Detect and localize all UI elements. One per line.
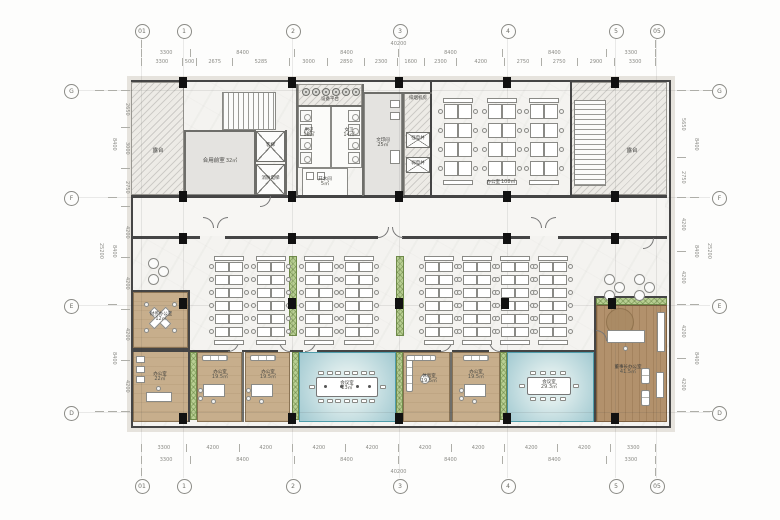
chair: [519, 384, 525, 388]
dim-label: 2750: [541, 58, 577, 66]
desk: [444, 123, 458, 138]
grid-bubble-right: F: [712, 191, 727, 206]
dim-label: 25200: [95, 90, 104, 412]
chair: [524, 166, 529, 171]
chair: [495, 277, 500, 282]
dim-label: 2675: [196, 58, 232, 66]
desk: [544, 123, 558, 138]
chair: [211, 399, 216, 404]
grid-bubble-right: G: [712, 84, 727, 99]
copier: [390, 112, 400, 120]
desk: [257, 262, 271, 272]
desk: [229, 288, 243, 298]
office-108-label: 办公室108㎡: [474, 180, 528, 186]
desk: [477, 275, 491, 285]
desk: [488, 142, 502, 157]
desk: [488, 161, 502, 176]
wall: [285, 130, 287, 195]
dim-bottom-spans: 330084008400840084003300: [141, 456, 656, 464]
chair: [244, 329, 249, 334]
dim-label: 2850: [327, 58, 364, 66]
dim-label: 4200: [292, 444, 345, 452]
chair: [318, 399, 324, 403]
dim-label: 5285: [232, 58, 289, 66]
desk-bank: [462, 256, 492, 346]
wall: [317, 350, 441, 352]
desk: [477, 327, 491, 337]
dim-label: 8400: [294, 49, 398, 57]
chair: [472, 399, 477, 404]
desk: [539, 275, 553, 285]
chair: [335, 399, 341, 403]
round-table: [604, 274, 615, 285]
desk: [488, 104, 502, 119]
stair-top-left: [222, 92, 276, 130]
chair: [198, 396, 203, 401]
desk: [477, 288, 491, 298]
desk: [271, 262, 285, 272]
chair: [380, 385, 386, 389]
chair: [251, 277, 256, 282]
desk: [515, 327, 529, 337]
dim-right-total: 25200: [703, 90, 712, 412]
chair: [559, 147, 564, 152]
desk: [515, 262, 529, 272]
dim-label: 3300: [141, 58, 182, 66]
chair: [623, 346, 628, 351]
desk: [305, 301, 319, 311]
dim-label: 4200: [451, 444, 504, 452]
chair: [524, 109, 529, 114]
chair: [517, 109, 522, 114]
chair: [517, 147, 522, 152]
chair: [209, 264, 214, 269]
chair: [560, 397, 566, 401]
column: [395, 413, 403, 424]
equipment-fan: [322, 88, 330, 96]
wall: [296, 105, 362, 107]
desk-cap: [344, 340, 374, 345]
desk: [345, 327, 359, 337]
chair: [438, 147, 443, 152]
desk: [502, 123, 516, 138]
desk: [501, 275, 515, 285]
chair: [457, 329, 462, 334]
grid-line-h: [78, 90, 710, 91]
column: [503, 413, 511, 424]
desk: [305, 275, 319, 285]
dim-label: 4200: [398, 444, 451, 452]
chair: [495, 316, 500, 321]
dim-label: 8400: [398, 456, 502, 464]
dim-label: 4200: [121, 257, 130, 308]
dim-left-total: 25200: [95, 90, 104, 412]
desk: [439, 327, 453, 337]
chair: [374, 303, 379, 308]
terrace-left-label: 露台: [138, 148, 178, 154]
dim-label: 3300: [610, 444, 656, 452]
desk: [477, 301, 491, 311]
chair: [144, 302, 149, 307]
desk-cap: [214, 256, 244, 261]
desk: [257, 288, 271, 298]
desk: [345, 262, 359, 272]
chair: [457, 316, 462, 321]
dim-label: 8400: [502, 49, 606, 57]
smoke-fan-room-label: 排烟机房: [404, 96, 432, 101]
planter: [500, 352, 507, 420]
dim-label: 4200: [456, 58, 504, 66]
weak-shaft-label: 弱电井: [406, 161, 430, 166]
grid-bubble-top: 05: [650, 24, 665, 39]
column: [179, 413, 187, 424]
chair: [335, 371, 341, 375]
wall: [570, 80, 572, 196]
chair: [419, 277, 424, 282]
grid-bubble-top: 5: [609, 24, 624, 39]
dim-label: 8400: [690, 304, 699, 412]
office-22-label: 办公室22㎡: [140, 372, 180, 383]
dim-label: 2300: [424, 58, 457, 66]
desk: [530, 104, 544, 119]
column: [288, 77, 296, 88]
sofa: [250, 355, 276, 361]
desk: [271, 288, 285, 298]
chair: [251, 303, 256, 308]
desk: [319, 327, 333, 337]
office-desk: [203, 384, 225, 397]
chair: [560, 371, 566, 375]
dim-label: 4200: [677, 251, 686, 305]
chair: [299, 290, 304, 295]
desk: [458, 161, 472, 176]
desk-cap: [424, 340, 454, 345]
toilet-stall: [348, 138, 360, 150]
executive-desk: [607, 330, 645, 343]
chair: [172, 328, 177, 333]
grid-bubble-left: E: [64, 299, 79, 314]
column: [179, 233, 187, 244]
desk: [463, 301, 477, 311]
equipment-fan: [342, 88, 350, 96]
chair: [540, 371, 546, 375]
dim-label: 3300: [606, 456, 656, 464]
desk: [271, 314, 285, 324]
desk: [359, 327, 373, 337]
chair: [438, 166, 443, 171]
chair: [419, 290, 424, 295]
dim-label: 4200: [677, 304, 686, 358]
desk-bank: [529, 98, 559, 186]
desk: [215, 301, 229, 311]
chair: [495, 303, 500, 308]
chair: [495, 290, 500, 295]
desk-cap: [500, 256, 530, 261]
desk: [425, 314, 439, 324]
sofa: [202, 355, 228, 361]
chair: [473, 128, 478, 133]
chair: [419, 329, 424, 334]
desk: [458, 142, 472, 157]
chair: [374, 329, 379, 334]
desk-cap: [462, 256, 492, 261]
sofa: [641, 390, 650, 406]
chair: [344, 399, 350, 403]
dim-label: 8400: [690, 197, 699, 304]
desk: [544, 104, 558, 119]
toilet-stall: [300, 110, 312, 122]
terrace-left: [131, 82, 184, 195]
desk-cap: [500, 340, 530, 345]
desk: [345, 275, 359, 285]
wall: [362, 84, 364, 196]
chair: [568, 329, 573, 334]
desk: [305, 262, 319, 272]
grid-bubble-top: 01: [135, 24, 150, 39]
chair: [209, 277, 214, 282]
column: [395, 298, 403, 309]
chair: [374, 264, 379, 269]
chair: [244, 264, 249, 269]
chair: [473, 166, 478, 171]
chair: [299, 277, 304, 282]
equipment-fan: [312, 88, 320, 96]
dim-label: 1600: [397, 58, 424, 66]
dim-label: 4200: [504, 444, 557, 452]
desk: [539, 301, 553, 311]
work-table: [390, 150, 400, 164]
elevator-label: 客梯: [258, 143, 283, 148]
chair: [482, 128, 487, 133]
desk: [319, 288, 333, 298]
desk: [425, 275, 439, 285]
dim-bottom-total: 40200: [141, 468, 656, 476]
fire-elevator-label: 消防电梯: [256, 176, 285, 181]
chair: [318, 371, 324, 375]
dim-label: 4200: [345, 444, 398, 452]
desk: [539, 288, 553, 298]
dim-left-sub: 2650300027504200420042004200: [121, 90, 130, 412]
column: [503, 233, 511, 244]
desk: [229, 327, 243, 337]
desk-bank: [256, 256, 286, 346]
desk: [553, 275, 567, 285]
chair: [573, 384, 579, 388]
desk: [257, 275, 271, 285]
desk: [345, 314, 359, 324]
desk: [439, 301, 453, 311]
chair: [286, 329, 291, 334]
dim-label: 2750: [677, 157, 686, 197]
dim-top-total: 40200: [141, 40, 656, 48]
desk: [439, 288, 453, 298]
chair: [533, 277, 538, 282]
column: [503, 77, 511, 88]
desk: [425, 288, 439, 298]
chair: [251, 290, 256, 295]
desk: [501, 327, 515, 337]
meeting-1-label: 会议室23㎡: [323, 381, 371, 392]
wall: [402, 92, 404, 196]
dim-label: 8400: [502, 456, 606, 464]
desk: [515, 275, 529, 285]
desk: [229, 275, 243, 285]
chair: [209, 303, 214, 308]
desk: [501, 314, 515, 324]
chair: [374, 316, 379, 321]
desk: [359, 301, 373, 311]
desk: [319, 262, 333, 272]
desk: [439, 275, 453, 285]
chair: [246, 396, 251, 401]
desk: [215, 275, 229, 285]
desk: [502, 104, 516, 119]
chair: [299, 316, 304, 321]
chair: [344, 371, 350, 375]
dim-label: 2300: [364, 58, 397, 66]
desk: [439, 314, 453, 324]
round-table: [158, 266, 169, 277]
dim-label: 8400: [190, 49, 294, 57]
meeting-2-label: 会议室29.3㎡: [529, 380, 569, 391]
toilet-stall: [300, 152, 312, 164]
chair: [209, 316, 214, 321]
dim-label: 2750: [504, 58, 540, 66]
chair: [550, 397, 556, 401]
desk: [553, 262, 567, 272]
desk: [488, 123, 502, 138]
desk: [359, 288, 373, 298]
column: [501, 298, 509, 309]
desk: [501, 288, 515, 298]
chair: [533, 264, 538, 269]
chair: [524, 128, 529, 133]
desk: [530, 161, 544, 176]
planter: [292, 352, 299, 420]
desk: [458, 123, 472, 138]
chair: [286, 290, 291, 295]
desk: [501, 262, 515, 272]
toilet-stall: [300, 138, 312, 150]
wall: [184, 130, 256, 132]
desk-bank: [304, 256, 334, 346]
dim-label: 500: [182, 58, 197, 66]
chair: [361, 371, 367, 375]
dim-label: 3300: [141, 49, 190, 57]
desk: [319, 314, 333, 324]
grid-bubble-bottom: 5: [609, 479, 624, 494]
office-22-desk: [146, 392, 172, 402]
chair: [550, 371, 556, 375]
desk: [502, 161, 516, 176]
chair: [327, 371, 333, 375]
desk: [544, 142, 558, 157]
chair: [299, 264, 304, 269]
desk: [425, 301, 439, 311]
chair: [533, 303, 538, 308]
desk: [515, 314, 529, 324]
dim-right-spans: 840084008400: [690, 90, 699, 412]
desk: [271, 301, 285, 311]
chair: [559, 166, 564, 171]
chair: [339, 290, 344, 295]
chair: [482, 147, 487, 152]
desk: [215, 288, 229, 298]
chair: [517, 166, 522, 171]
column: [179, 191, 187, 202]
office-c-label: 办公室19.5㎡: [456, 370, 496, 381]
office-a-label: 办公室19.5㎡: [200, 370, 240, 381]
desk-cap: [443, 98, 473, 103]
dim-label: 8400: [190, 456, 294, 464]
desk: [425, 262, 439, 272]
cabinet: [136, 356, 145, 363]
chair: [327, 399, 333, 403]
floor-plan: 露台 露台 合用前室32㎡ 客梯 消防电梯 男卫16㎡ 女卫14㎡ 开水间5㎡ …: [0, 0, 780, 520]
column: [611, 191, 619, 202]
chair: [482, 166, 487, 171]
stair-top-right: [574, 100, 606, 186]
desk: [229, 262, 243, 272]
desk: [345, 301, 359, 311]
desk-cap: [344, 256, 374, 261]
wall: [184, 130, 186, 195]
dim-label: 8400: [108, 90, 117, 197]
chair: [244, 316, 249, 321]
dim-label: 8400: [294, 456, 398, 464]
terrace-right-label: 露台: [612, 148, 652, 154]
wall: [452, 350, 489, 352]
dim-label: 8400: [398, 49, 502, 57]
desk: [305, 327, 319, 337]
wall: [296, 84, 298, 196]
dim-label: 40200: [141, 468, 656, 476]
grid-bubble-bottom: 1: [177, 479, 192, 494]
finance-office-label: 财务办公室12㎡: [136, 312, 186, 323]
desk-bank: [424, 256, 454, 346]
round-table: [634, 274, 645, 285]
desk-cap: [529, 98, 559, 103]
desk: [444, 142, 458, 157]
chair: [309, 385, 315, 389]
desk: [229, 314, 243, 324]
dim-label: 4200: [186, 444, 239, 452]
sofa: [463, 355, 489, 361]
desk: [444, 161, 458, 176]
chair: [517, 128, 522, 133]
chair: [568, 264, 573, 269]
office-b-label: 办公室19.5㎡: [248, 370, 288, 381]
column: [611, 413, 619, 424]
dim-label: 3000: [289, 58, 327, 66]
chair: [244, 277, 249, 282]
dim-top-sub: 3300500267552853000285023001600230042002…: [141, 58, 656, 66]
column: [288, 191, 296, 202]
chair: [457, 303, 462, 308]
desk-cap: [304, 256, 334, 261]
dim-label: 2750: [121, 168, 130, 206]
dim-label: 4200: [557, 444, 610, 452]
desk: [539, 262, 553, 272]
chair: [374, 290, 379, 295]
chair: [419, 316, 424, 321]
desk: [553, 327, 567, 337]
chair: [244, 290, 249, 295]
column: [288, 298, 296, 309]
chair: [533, 290, 538, 295]
desk: [345, 288, 359, 298]
desk: [229, 301, 243, 311]
